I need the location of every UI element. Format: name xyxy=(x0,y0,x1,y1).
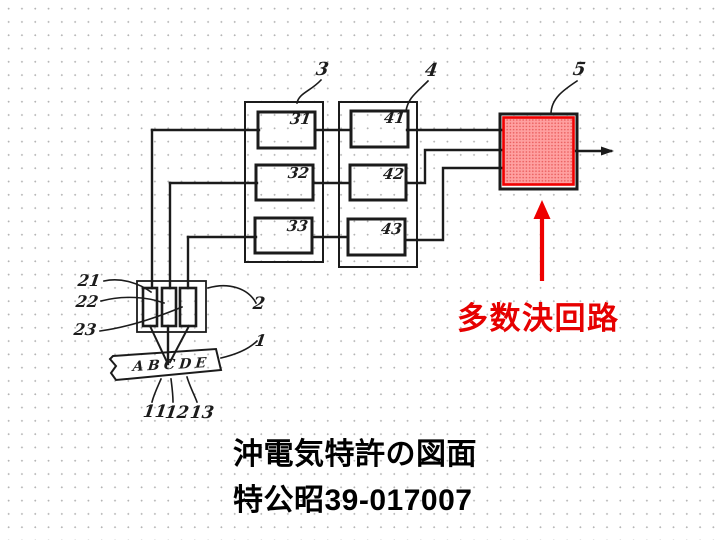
output-arrowhead-icon xyxy=(601,147,614,156)
sensor-label-22: 22 xyxy=(75,294,100,310)
figure-label-5: 5 xyxy=(572,61,587,79)
majority-circuit-highlight xyxy=(504,118,574,185)
box-label-31: 31 xyxy=(289,112,312,127)
box-label-43: 43 xyxy=(380,222,403,237)
caption-title: 沖電気特許の図面 xyxy=(233,440,477,470)
figure-label-1: 1 xyxy=(254,333,267,349)
wire xyxy=(405,168,503,240)
track-label-12: 12 xyxy=(164,405,190,422)
box-label-33: 33 xyxy=(286,219,309,234)
sensor-label-21: 21 xyxy=(77,273,102,289)
slide: 3 4 5 31 32 33 41 42 43 21 22 23 2 1 11 … xyxy=(0,0,720,540)
wire xyxy=(406,150,503,183)
tape-letters: ABCDE xyxy=(132,356,211,374)
figure-label-3: 3 xyxy=(315,61,330,79)
red-callout-arrow-icon xyxy=(534,200,551,281)
caption-patent-number: 特公昭39-017007 xyxy=(233,486,472,516)
figure-label-4: 4 xyxy=(424,62,439,80)
box-label-41: 41 xyxy=(383,111,406,126)
box-label-32: 32 xyxy=(287,166,310,181)
annotation-majority-circuit: 多数決回路 xyxy=(457,303,620,334)
figure-label-2: 2 xyxy=(252,296,266,313)
sensor-22 xyxy=(162,288,176,326)
sensor-label-23: 23 xyxy=(73,322,98,338)
box-label-42: 42 xyxy=(382,167,405,182)
track-label-13: 13 xyxy=(189,405,215,422)
